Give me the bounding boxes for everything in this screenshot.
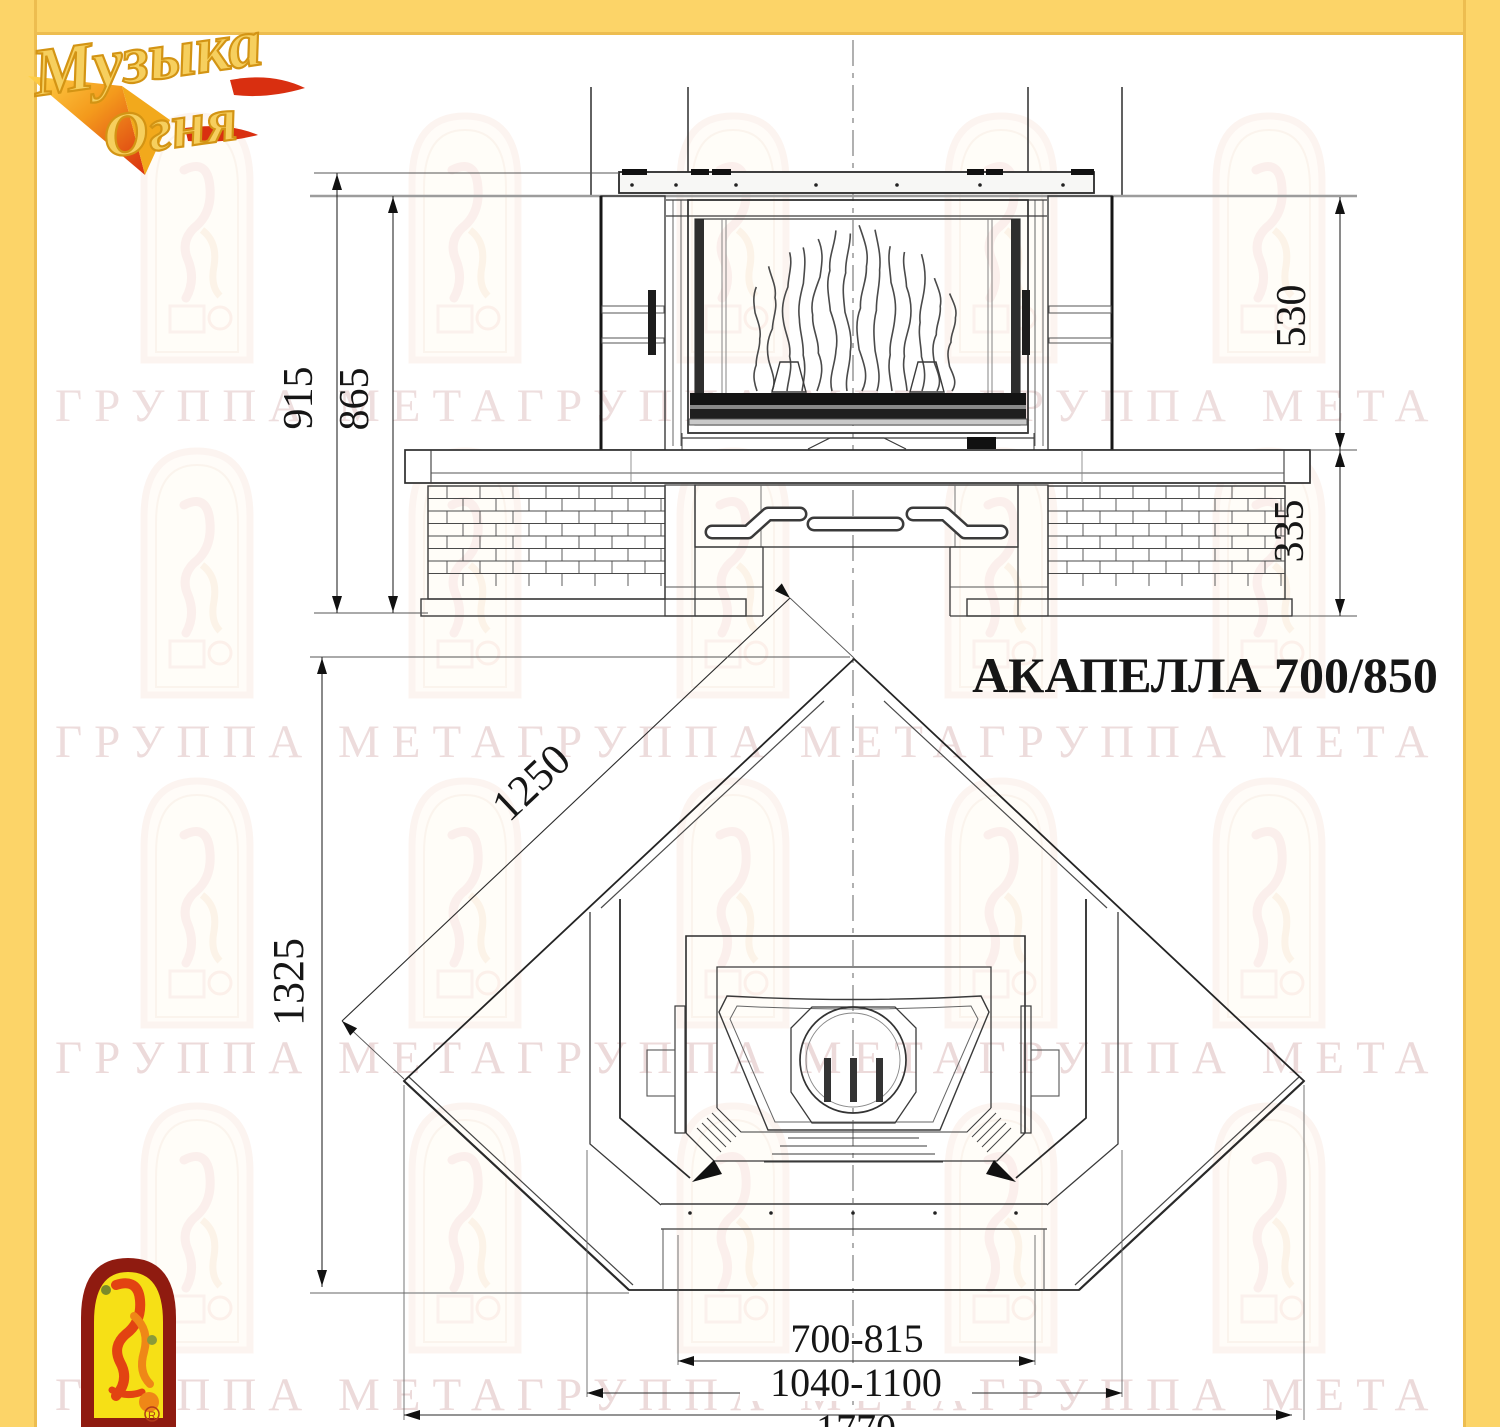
svg-text:R: R xyxy=(148,1410,156,1422)
svg-text:ГРУППА МЕТАГРУППА МЕТАГРУППА М: ГРУППА МЕТАГРУППА МЕТАГРУППА МЕТА xyxy=(55,1032,1440,1084)
svg-text:915: 915 xyxy=(276,367,322,430)
svg-text:865: 865 xyxy=(332,368,378,431)
svg-text:335: 335 xyxy=(1267,500,1313,563)
svg-text:ГРУППА МЕТАГРУППА МЕТАГРУППА М: ГРУППА МЕТАГРУППА МЕТАГРУППА МЕТА xyxy=(55,716,1440,768)
svg-text:530: 530 xyxy=(1269,285,1315,348)
svg-text:1325: 1325 xyxy=(264,938,313,1026)
svg-text:АКАПЕЛЛА 700/850: АКАПЕЛЛА 700/850 xyxy=(972,647,1438,703)
svg-text:700-815: 700-815 xyxy=(790,1316,923,1361)
svg-text:1770: 1770 xyxy=(816,1406,896,1427)
svg-text:1040-1100: 1040-1100 xyxy=(770,1360,942,1405)
